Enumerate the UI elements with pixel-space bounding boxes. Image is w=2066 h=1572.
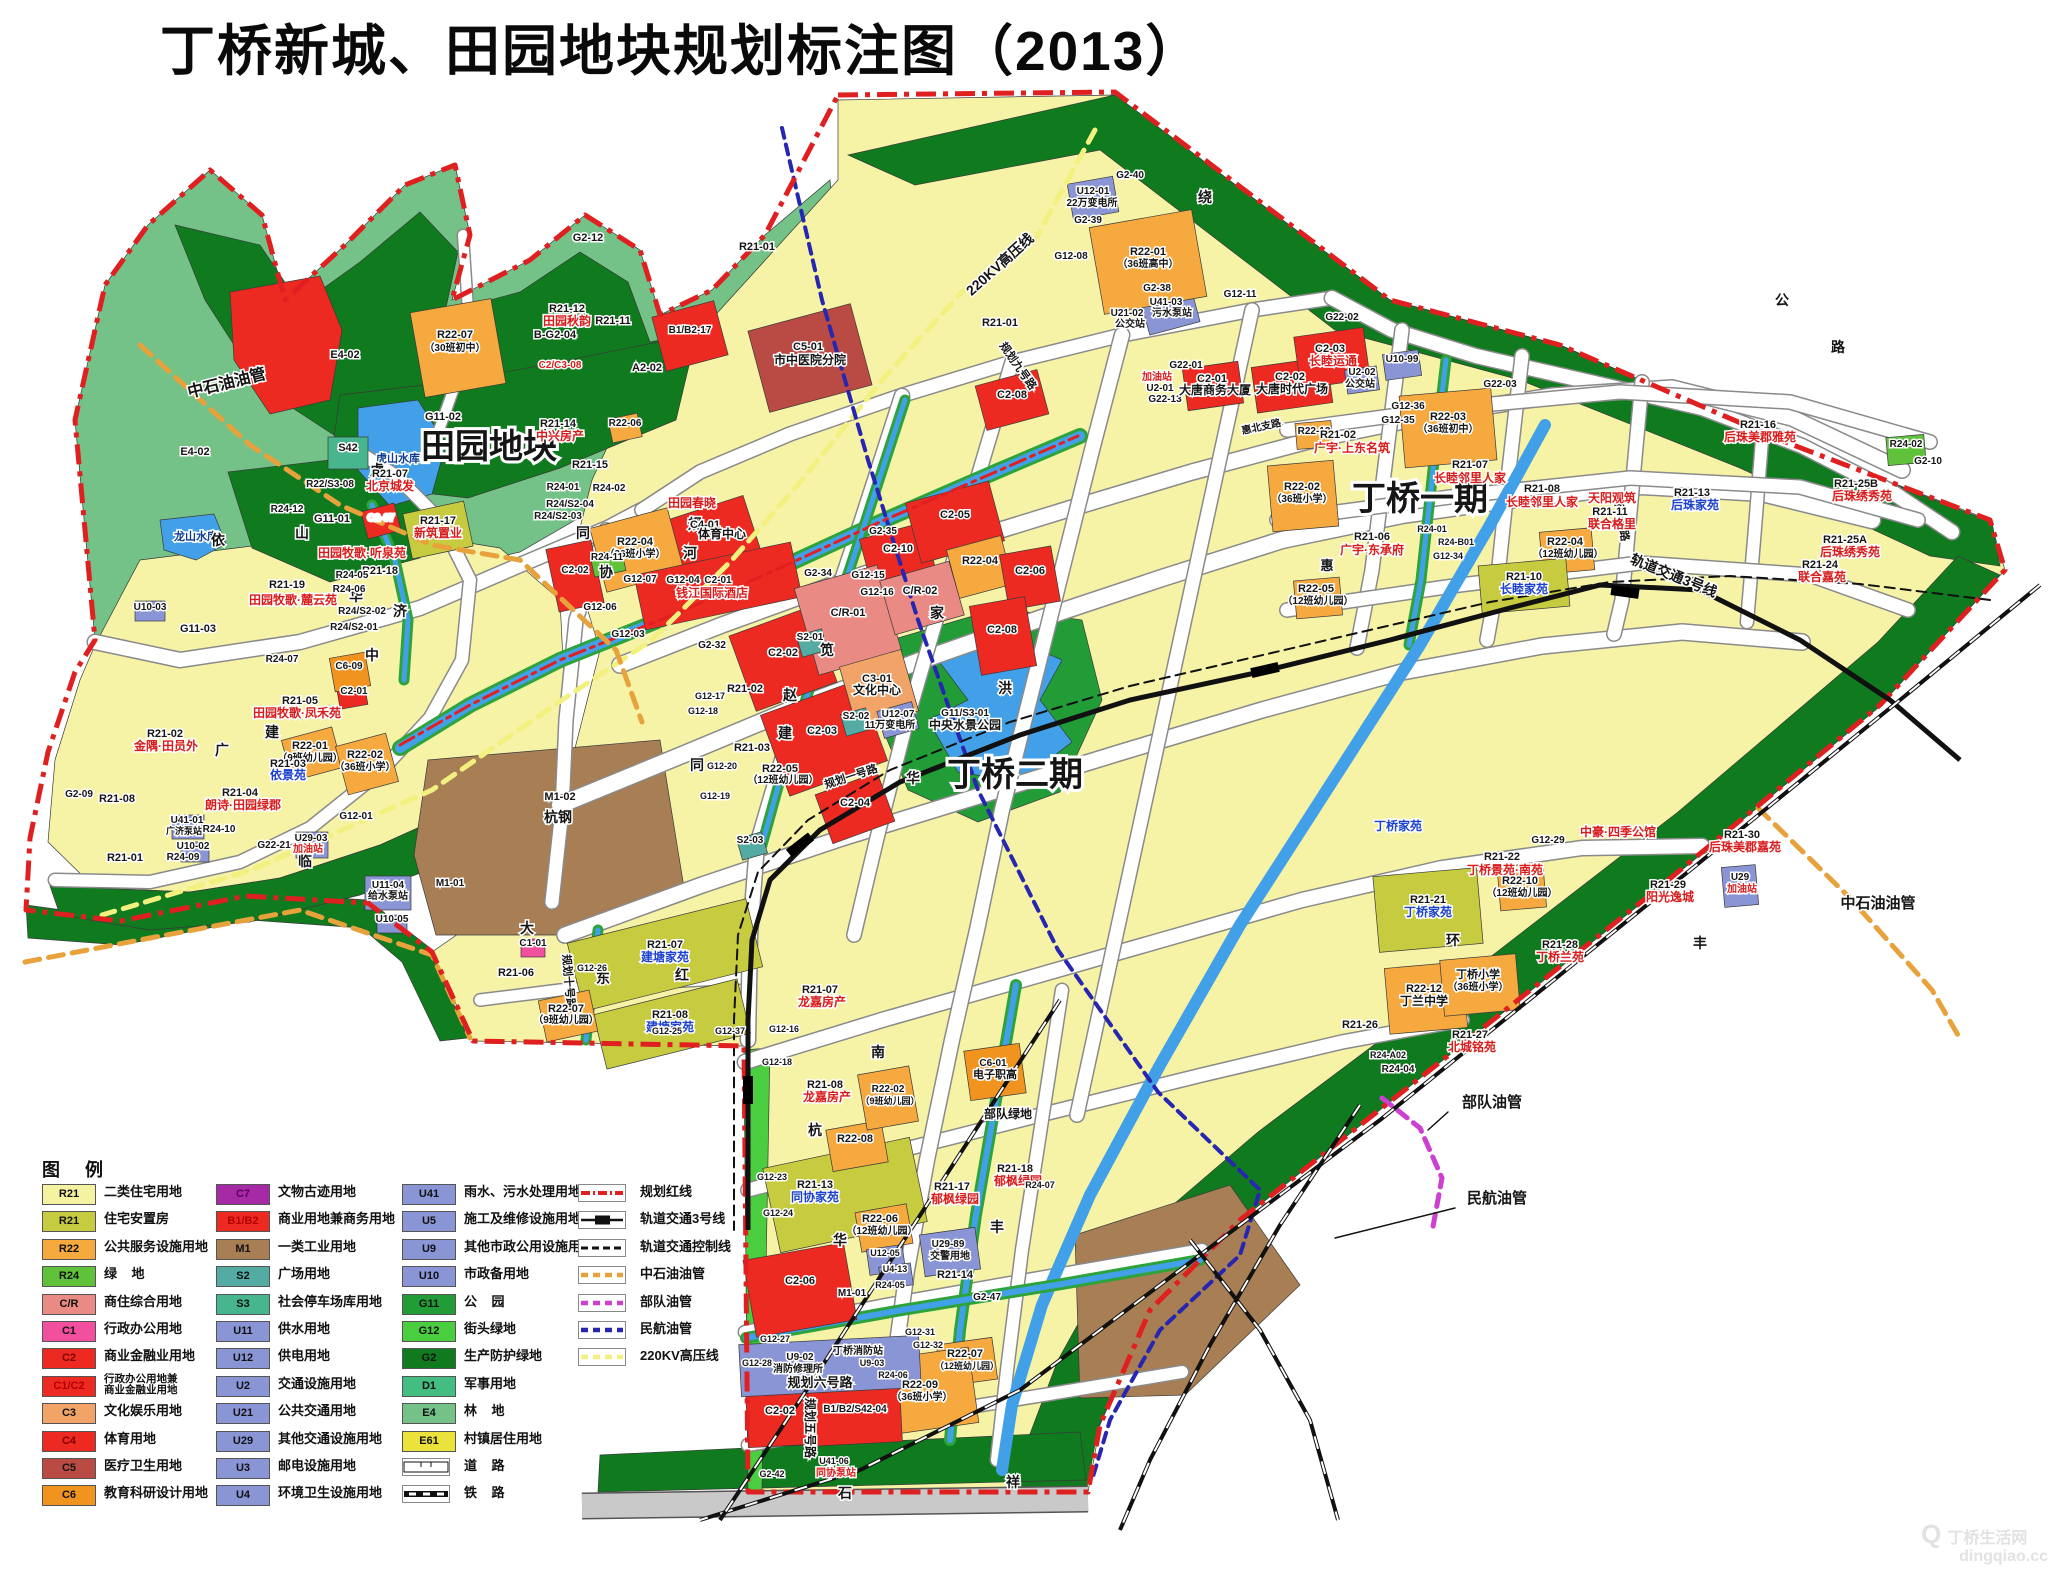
legend-swatch: U10 (402, 1266, 456, 1287)
map-label: R22-05 (762, 763, 798, 775)
map-label: G2-38 (1143, 283, 1171, 294)
map-label: C2-02 (561, 565, 589, 576)
map-label: R21-02 (727, 683, 763, 695)
army-pipeline (1382, 1098, 1442, 1232)
legend-swatch: U9 (402, 1239, 456, 1260)
map-label: 惠 (1320, 558, 1333, 573)
metro-station (743, 1076, 753, 1104)
legend-swatch: R24 (42, 1266, 96, 1287)
map-label: U29-03 (295, 833, 328, 844)
map-label: G11-02 (425, 411, 461, 423)
map-label: 龙嘉房产 (798, 994, 846, 1009)
legend-label: 街头绿地 (464, 1322, 516, 1336)
map-label: R21-22 (1484, 851, 1520, 863)
map-label: 公交站 (1115, 317, 1145, 330)
map-label: R21-01 (982, 317, 1018, 329)
legend-label: 道 路 (464, 1459, 504, 1473)
legend-symbol-dash (578, 1294, 626, 1312)
map-label: 中央水景公园 (929, 717, 1001, 732)
map-label: （12班幼儿园） (1486, 886, 1557, 899)
map-label: 民航油管 (1467, 1189, 1527, 1207)
map-label: 绕 (1198, 189, 1212, 205)
legend-swatch: C1 (42, 1321, 96, 1342)
map-label: R22-04 (962, 555, 999, 567)
map-label: U11-04 (372, 880, 405, 891)
map-label: R21-01 (739, 241, 775, 253)
legend-symbol-dash (578, 1348, 626, 1366)
legend-symbol-dash (578, 1321, 626, 1339)
map-label: M1-01 (436, 878, 465, 889)
legend-label: 施工及维修设施用地 (464, 1212, 581, 1226)
watermark: Q丁桥生活网 dingqiao.cc (1921, 1520, 2048, 1566)
map-label: R24/S2-03 (534, 511, 582, 522)
legend-swatch: U11 (216, 1321, 270, 1342)
map-label: 协 (599, 564, 613, 580)
map-label: R22-08 (837, 1133, 873, 1145)
legend-label: 其他交通设施用地 (278, 1432, 382, 1446)
map-label: G12-35 (1381, 415, 1415, 426)
map-label: B-G2-04 (534, 329, 577, 341)
legend-swatch: U41 (402, 1184, 456, 1205)
map-label: 后珠绣秀苑 (1832, 488, 1892, 503)
map-label: 丰 (1693, 935, 1707, 951)
map-label: 济 (393, 603, 408, 619)
map-label: G12-31 (905, 1327, 935, 1337)
map-label: R21-15 (572, 459, 608, 471)
map-label: 田园牧歌·麓云苑 (249, 592, 337, 607)
map-label: R22-06 (609, 418, 642, 429)
legend-label: 其他市政公用设施用地 (464, 1240, 594, 1254)
map-label: R22-01 (292, 740, 328, 752)
map-label: M1-02 (544, 791, 575, 803)
map-label: 龙嘉房产 (803, 1089, 851, 1104)
map-label: R22-03 (1430, 411, 1466, 423)
map-label: 郁枫绿园 (930, 1191, 979, 1206)
map-label: R21-19 (269, 579, 305, 591)
map-label: R22-09 (902, 1379, 938, 1391)
map-label: 路 (1831, 339, 1846, 355)
legend-symbol-metro (578, 1211, 626, 1229)
map-label: U10-99 (1386, 354, 1419, 365)
map-label: G12-08 (1054, 251, 1088, 262)
map-label: （36班高中） (1117, 257, 1178, 270)
map-label: G2-35 (869, 526, 897, 537)
map-label: G2-10 (1914, 456, 1942, 467)
leader-aviation-label (1335, 1208, 1455, 1238)
map-label: 杭 (808, 1122, 822, 1138)
map-label: 加油站 (292, 842, 323, 855)
map-label: G12-18 (688, 706, 718, 716)
map-label: C2-08 (987, 624, 1017, 636)
map-label: 长睦家苑 (1500, 581, 1548, 596)
legend-swatch: C/R (42, 1294, 96, 1315)
map-label: R22-10 (1502, 875, 1538, 887)
legend-swatch: U5 (402, 1211, 456, 1232)
map-label: G22-01 (1169, 360, 1203, 371)
legend-label: 行政办公用地兼 商业金融业用地 (104, 1374, 178, 1396)
legend-label: 社会停车场库用地 (278, 1295, 382, 1309)
map-label: G11-01 (314, 513, 350, 525)
map-label: C2/C3-08 (539, 360, 582, 371)
map-label: U29-89 (932, 1239, 965, 1250)
map-label: R24-07 (1025, 1180, 1055, 1190)
map-label: R24-02 (1890, 439, 1923, 450)
map-label: 建 (778, 725, 792, 741)
legend-swatch: C3 (42, 1403, 96, 1424)
map-label: 同 (576, 525, 590, 541)
map-label: 天阳观筑 (1588, 490, 1636, 505)
legend-swatch: C1/C2 (42, 1376, 96, 1397)
map-label: 南 (871, 1044, 885, 1060)
map-label: R24/S2-01 (330, 622, 378, 633)
petrochina-pipeline-east (1758, 808, 1962, 1042)
map-label: G12-18 (762, 1057, 792, 1067)
legend-label: 教育科研设计用地 (104, 1486, 208, 1500)
legend-label: 军事用地 (464, 1377, 516, 1391)
map-label: G2-32 (698, 640, 726, 651)
map-label: 华 (906, 770, 920, 786)
legend-swatch: U12 (216, 1348, 270, 1369)
legend-label: 商住综合用地 (104, 1295, 182, 1309)
legend-symbol-ctrl (578, 1239, 626, 1257)
legend-label: 公共服务设施用地 (104, 1240, 208, 1254)
legend-label: 中石油油管 (640, 1267, 705, 1281)
map-label: G22-21 (257, 840, 291, 851)
map-label: G2-40 (1116, 170, 1144, 181)
map-label: R22-05 (1298, 583, 1334, 595)
legend-symbol-rail (402, 1485, 450, 1503)
map-label: U41-01 (171, 815, 204, 826)
legend-swatch: C2 (42, 1348, 96, 1369)
map-label: 山 (295, 525, 309, 541)
map-label: 洪 (998, 680, 1012, 696)
map-label: G12-36 (1391, 401, 1425, 412)
map-label: G22-13 (1148, 394, 1182, 405)
map-label: 河 (683, 545, 697, 561)
map-label: 公 (1775, 292, 1789, 308)
legend-swatch: C7 (216, 1184, 270, 1205)
map-label: G2-47 (973, 1292, 1001, 1303)
map-label: 后珠绣秀苑 (1820, 544, 1880, 559)
map-label: R22-07 (548, 1003, 584, 1015)
map-label: R21-01 (107, 852, 143, 864)
map-label: B1/B2-17 (669, 325, 712, 336)
legend-label: 文化娱乐用地 (104, 1404, 182, 1418)
map-label: 长睦邻里人家 (1434, 470, 1507, 485)
map-label: （36班小学） (334, 760, 395, 773)
map-label: C2-08 (997, 389, 1027, 401)
map-label: 建塘家苑 (640, 949, 689, 964)
map-label: 污水泵站 (1152, 306, 1192, 319)
map-label: R24-11 (591, 552, 624, 563)
parcel (969, 597, 1036, 676)
map-label: G2-39 (1074, 215, 1102, 226)
legend-label: 规划红线 (640, 1185, 692, 1199)
map-label: U29 (1731, 872, 1750, 883)
legend-label: 市政备用地 (464, 1267, 529, 1281)
map-label: R22/S3-08 (306, 479, 354, 490)
map-label: R21-06 (1354, 531, 1390, 543)
map-label: （12班幼儿园） (935, 1360, 999, 1371)
map-label: 后珠美郡嘉苑 (1709, 839, 1781, 854)
legend-label: 轨道交通3号线 (640, 1212, 725, 1226)
legend-label: 邮电设施用地 (278, 1459, 356, 1473)
map-label: 联合嘉苑 (1798, 569, 1846, 584)
legend-header: 图 例 (42, 1156, 113, 1182)
map-label: G12-20 (707, 761, 737, 771)
map-label: 体育中心 (698, 526, 746, 541)
map-label: 联合格里 (1588, 516, 1636, 531)
map-label: S2-03 (737, 835, 764, 846)
map-label: 公交站 (1345, 377, 1375, 390)
map-label: R21-11 (595, 315, 630, 327)
map-label: G12-37 (715, 1026, 745, 1036)
map-label: 新筑置业 (414, 525, 462, 540)
map-label: （12班幼儿园） (1282, 594, 1353, 607)
map-label: C1-01 (519, 938, 547, 949)
legend-label: 环境卫生设施用地 (278, 1486, 382, 1500)
map-label: G12-01 (339, 811, 373, 822)
map-label: R24/S2-04 (546, 499, 594, 510)
legend-label: 公 园 (464, 1295, 504, 1309)
legend-swatch: R21 (42, 1211, 96, 1232)
legend-label: 住宅安置房 (104, 1212, 169, 1226)
map-label: U10-02 (177, 841, 210, 852)
map-label: G12-34 (1433, 551, 1463, 561)
map-label: （12班幼儿园） (1532, 547, 1603, 560)
map-label: 丰 (990, 1219, 1004, 1235)
map-label: 北京城发 (366, 478, 415, 493)
map-label: R24-06 (333, 584, 366, 595)
map-label: G12-06 (583, 602, 617, 613)
planning-map-page: { "title": "丁桥新城、田园地块规划标注图（2013）", "wate… (0, 0, 2066, 1572)
map-label: 中石油油管 (1840, 894, 1915, 912)
map-label: 北城铭苑 (1448, 1039, 1496, 1054)
map-label: （36班小学） (891, 1390, 952, 1403)
map-label: U12-07 (882, 709, 915, 720)
map-label: R24-07 (266, 654, 299, 665)
map-label: C6-01 (979, 1058, 1007, 1069)
legend-swatch: C5 (42, 1458, 96, 1479)
map-label: U2-01 (1146, 383, 1174, 394)
map-label: 长睦运通 (1309, 353, 1357, 368)
legend-label: 轨道交通控制线 (640, 1240, 731, 1254)
legend-swatch: C4 (42, 1431, 96, 1452)
map-label: C2-02 (768, 647, 798, 659)
map-label: C/R-02 (903, 585, 938, 597)
map-label: R22-02 (872, 1084, 905, 1095)
map-label: C2-04 (840, 797, 871, 809)
legend-label: 商业用地兼商务用地 (278, 1212, 395, 1226)
map-label: 笕 (820, 642, 834, 658)
map-label: 家 (930, 605, 945, 621)
map-label: （9班幼儿园） (533, 1013, 599, 1026)
map-label: C5-01 (793, 341, 823, 353)
legend-swatch: S2 (216, 1266, 270, 1287)
map-label: U21-02 (1111, 308, 1144, 319)
map-label: 临 (298, 853, 312, 869)
map-label: 赵 (782, 687, 798, 703)
map-label: 长睦邻里人家 (1506, 494, 1579, 509)
legend: 图 例 R21二类住宅用地R21住宅安置房R22公共服务设施用地R24绿 地C/… (30, 1156, 880, 1556)
legend-label: 二类住宅用地 (104, 1185, 182, 1199)
legend-label: 供电用地 (278, 1349, 330, 1363)
map-label: C2-06 (1015, 565, 1045, 577)
map-label: C2-01 (704, 575, 732, 586)
map-label: 广宇·东承府 (1340, 542, 1404, 557)
map-label: G12-03 (611, 629, 645, 640)
map-label: 金隅·田员外 (133, 738, 198, 753)
legend-label: 林 地 (464, 1404, 504, 1418)
map-label: 丁桥兰苑 (1536, 949, 1584, 964)
legend-swatch: S3 (216, 1294, 270, 1315)
map-label: R21-08 (99, 793, 135, 805)
map-label: 中兴房产 (536, 428, 584, 443)
map-label: S42 (338, 442, 358, 454)
map-label: 朗诗·田园绿郡 (205, 797, 281, 812)
map-label: G12-16 (769, 1024, 799, 1034)
map-label: R24-05 (336, 570, 369, 581)
legend-swatch: B1/B2 (216, 1211, 270, 1232)
map-label: R24-10 (203, 824, 236, 835)
map-label: R21-08 (1524, 483, 1560, 495)
map-label: R24/S2-02 (338, 606, 386, 617)
map-label: R22-04 (617, 536, 654, 548)
map-label: G2-12 (573, 232, 604, 244)
map-label: 大唐商务大厦 (1179, 382, 1252, 397)
map-label: 广宇·上东名筑 (1314, 440, 1390, 455)
legend-label: 生产防护绿地 (464, 1349, 542, 1363)
map-label: U12-01 (1077, 186, 1110, 197)
map-label: 依景苑 (270, 767, 306, 782)
legend-label: 一类工业用地 (278, 1240, 356, 1254)
map-label: 丁桥二期 (947, 756, 1083, 794)
map-label: R22-02 (1284, 481, 1320, 493)
watermark-site-name: 丁桥生活网 (1947, 1530, 2027, 1547)
map-label: 依 (211, 532, 226, 548)
map-label: G12-29 (1531, 835, 1565, 846)
map-label: G22-02 (1325, 312, 1359, 323)
map-label: G12-32 (913, 1340, 943, 1350)
map-label: 中 (365, 647, 379, 663)
map-label: 交警用地 (930, 1249, 970, 1262)
map-label: 同 (690, 757, 704, 773)
map-label: 钱江国际酒店 (676, 585, 748, 600)
legend-swatch: R22 (42, 1239, 96, 1260)
map-label: 后珠美郡雅苑 (1724, 429, 1796, 444)
map-label: R24-B01 (1438, 537, 1474, 547)
map-label: R22-04 (1547, 536, 1584, 548)
map-label: R22-07 (437, 329, 473, 341)
map-label: U10-05 (376, 914, 409, 925)
map-label: R21-26 (1342, 1019, 1378, 1031)
map-label: G12-17 (695, 691, 725, 701)
map-label: R21-14 (937, 1269, 974, 1281)
map-label: 大唐时代广场 (1256, 381, 1328, 396)
map-label: R22-07 (947, 1348, 983, 1360)
map-label: R21-06 (498, 967, 534, 979)
map-label: 中豪·四季公馆 (1580, 824, 1656, 839)
map-label: 田园牧歌·听泉苑 (318, 545, 406, 560)
map-label: G12-26 (577, 963, 607, 973)
legend-swatch: U4 (216, 1485, 270, 1506)
map-label: 后珠家苑 (1671, 497, 1719, 512)
map-label: U2-02 (1348, 367, 1376, 378)
map-label: U41-03 (1150, 297, 1183, 308)
map-label: G2-09 (65, 789, 93, 800)
map-label: U4-13 (883, 1264, 908, 1274)
map-label: 阳光逸城 (1646, 889, 1694, 904)
legend-symbol-road (402, 1458, 450, 1476)
map-label: G12-15 (851, 570, 885, 581)
map-label: 广 (215, 742, 229, 758)
map-label: 环 (1446, 932, 1460, 948)
map-label: R22-02 (347, 749, 383, 761)
legend-label: 文物古迹用地 (278, 1185, 356, 1199)
map-label: R24-01 (1417, 524, 1447, 534)
legend-label: 广场用地 (278, 1267, 330, 1281)
map-label: C/R-01 (831, 607, 866, 619)
map-label: G2-34 (804, 568, 832, 579)
legend-swatch: U21 (216, 1403, 270, 1424)
map-label: G12-25 (652, 1026, 682, 1036)
map-label: C2-03 (807, 725, 837, 737)
map-label: 丁桥家苑 (1374, 818, 1422, 833)
legend-label: 220KV高压线 (640, 1349, 719, 1363)
map-label: 22万变电所 (1066, 196, 1117, 209)
map-label: G12-04 (666, 575, 700, 586)
legend-label: 部队油管 (640, 1295, 692, 1309)
map-label: 丁兰中学 (1400, 993, 1448, 1008)
map-label: 丁桥家苑 (1404, 904, 1452, 919)
map-label: （36班初中） (1417, 422, 1478, 435)
map-label: （36班小学） (1271, 492, 1332, 505)
map-label: R24-A02 (1370, 1050, 1406, 1060)
legend-swatch: G2 (402, 1348, 456, 1369)
map-label: C6-09 (335, 661, 363, 672)
map-label: 丁桥一期 (1352, 480, 1488, 518)
map-label: 广济泵站 (166, 825, 202, 836)
legend-label: 行政办公用地 (104, 1322, 182, 1336)
legend-label: 体育用地 (104, 1432, 156, 1446)
map-label: U10-03 (134, 602, 167, 613)
map-label: G12-11 (1224, 289, 1257, 300)
map-label: 田园秋韵 (543, 313, 591, 328)
legend-label: 公共交通用地 (278, 1404, 356, 1418)
map-label: E4-02 (330, 349, 359, 361)
legend-label: 绿 地 (104, 1267, 144, 1281)
map-label: （9班幼儿园） (860, 1095, 919, 1106)
map-label: E4-02 (180, 446, 209, 458)
legend-label: 铁 路 (464, 1486, 504, 1500)
map-label: 文化中心 (853, 682, 901, 697)
map-label: G12-07 (623, 574, 657, 585)
legend-swatch: E61 (402, 1431, 456, 1452)
legend-swatch: U3 (216, 1458, 270, 1479)
map-label: C2-07 (367, 513, 395, 524)
map-label: （12班幼儿园） (747, 773, 818, 786)
legend-label: 村镇居住用地 (464, 1432, 542, 1446)
map-label: 11万变电所 (865, 718, 916, 731)
map-label: G22-03 (1483, 379, 1517, 390)
map-label: R22-01 (1130, 246, 1166, 258)
map-label: 电子职高 (973, 1067, 1017, 1081)
legend-swatch: E4 (402, 1403, 456, 1424)
map-label: R24-04 (1382, 1064, 1415, 1075)
map-label: 杭钢 (544, 809, 572, 825)
map-label: 部队油管 (1462, 1093, 1522, 1111)
legend-swatch: G12 (402, 1321, 456, 1342)
